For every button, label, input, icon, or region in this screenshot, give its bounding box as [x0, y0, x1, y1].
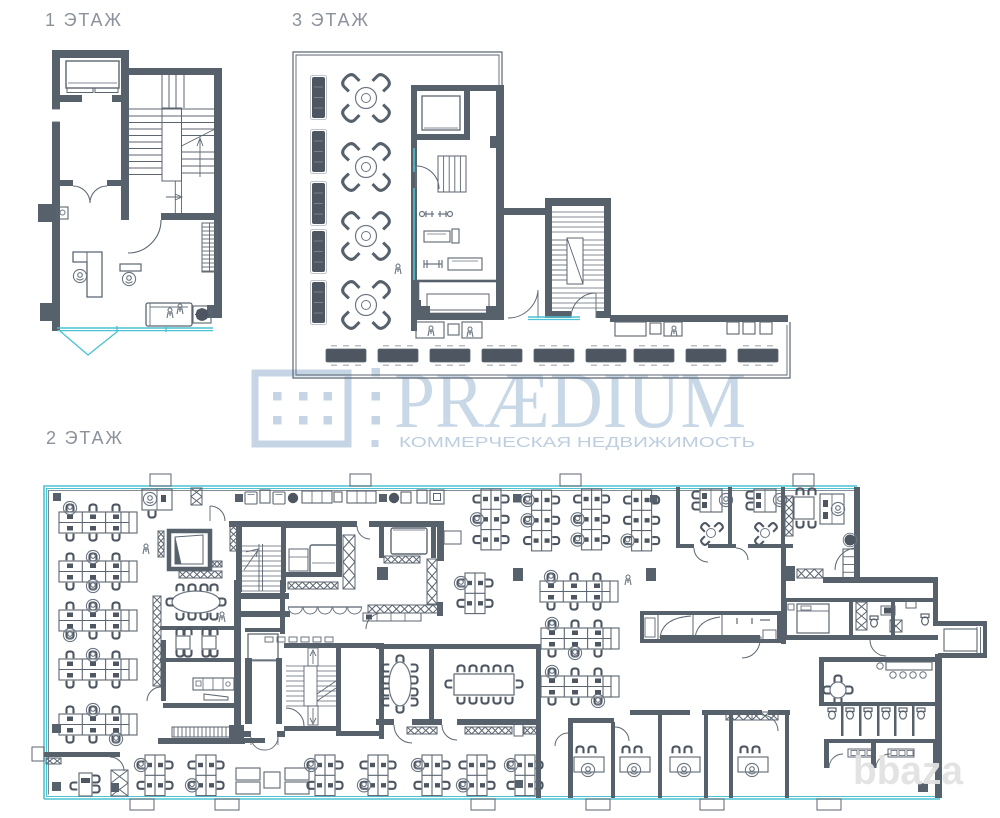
svg-text:2 ЭТАЖ: 2 ЭТАЖ	[46, 428, 124, 448]
svg-text:3 ЭТАЖ: 3 ЭТАЖ	[292, 10, 370, 30]
svg-text:PRÆDIUM: PRÆDIUM	[394, 358, 746, 445]
svg-text:КОММЕРЧЕСКАЯ НЕДВИЖИМОСТЬ: КОММЕРЧЕСКАЯ НЕДВИЖИМОСТЬ	[399, 434, 755, 451]
svg-text:bbaza: bbaza	[853, 749, 964, 793]
svg-text:1 ЭТАЖ: 1 ЭТАЖ	[45, 10, 123, 30]
